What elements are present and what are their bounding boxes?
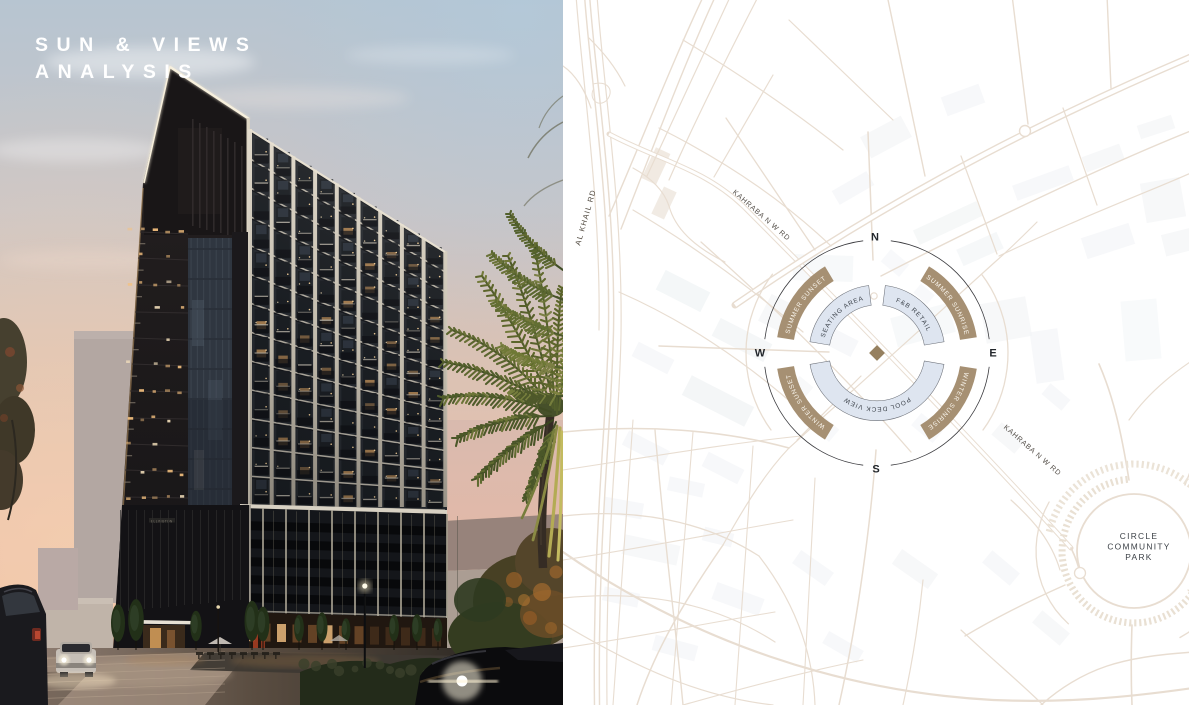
svg-text:E: E [989, 348, 996, 360]
svg-text:W: W [755, 348, 766, 360]
svg-text:ANALYSIS: ANALYSIS [35, 61, 200, 83]
svg-text:SUN & VIEWS: SUN & VIEWS [35, 34, 257, 56]
svg-text:ELLINGTON: ELLINGTON [151, 520, 173, 524]
svg-text:N: N [871, 232, 879, 244]
svg-text:S: S [872, 464, 879, 476]
